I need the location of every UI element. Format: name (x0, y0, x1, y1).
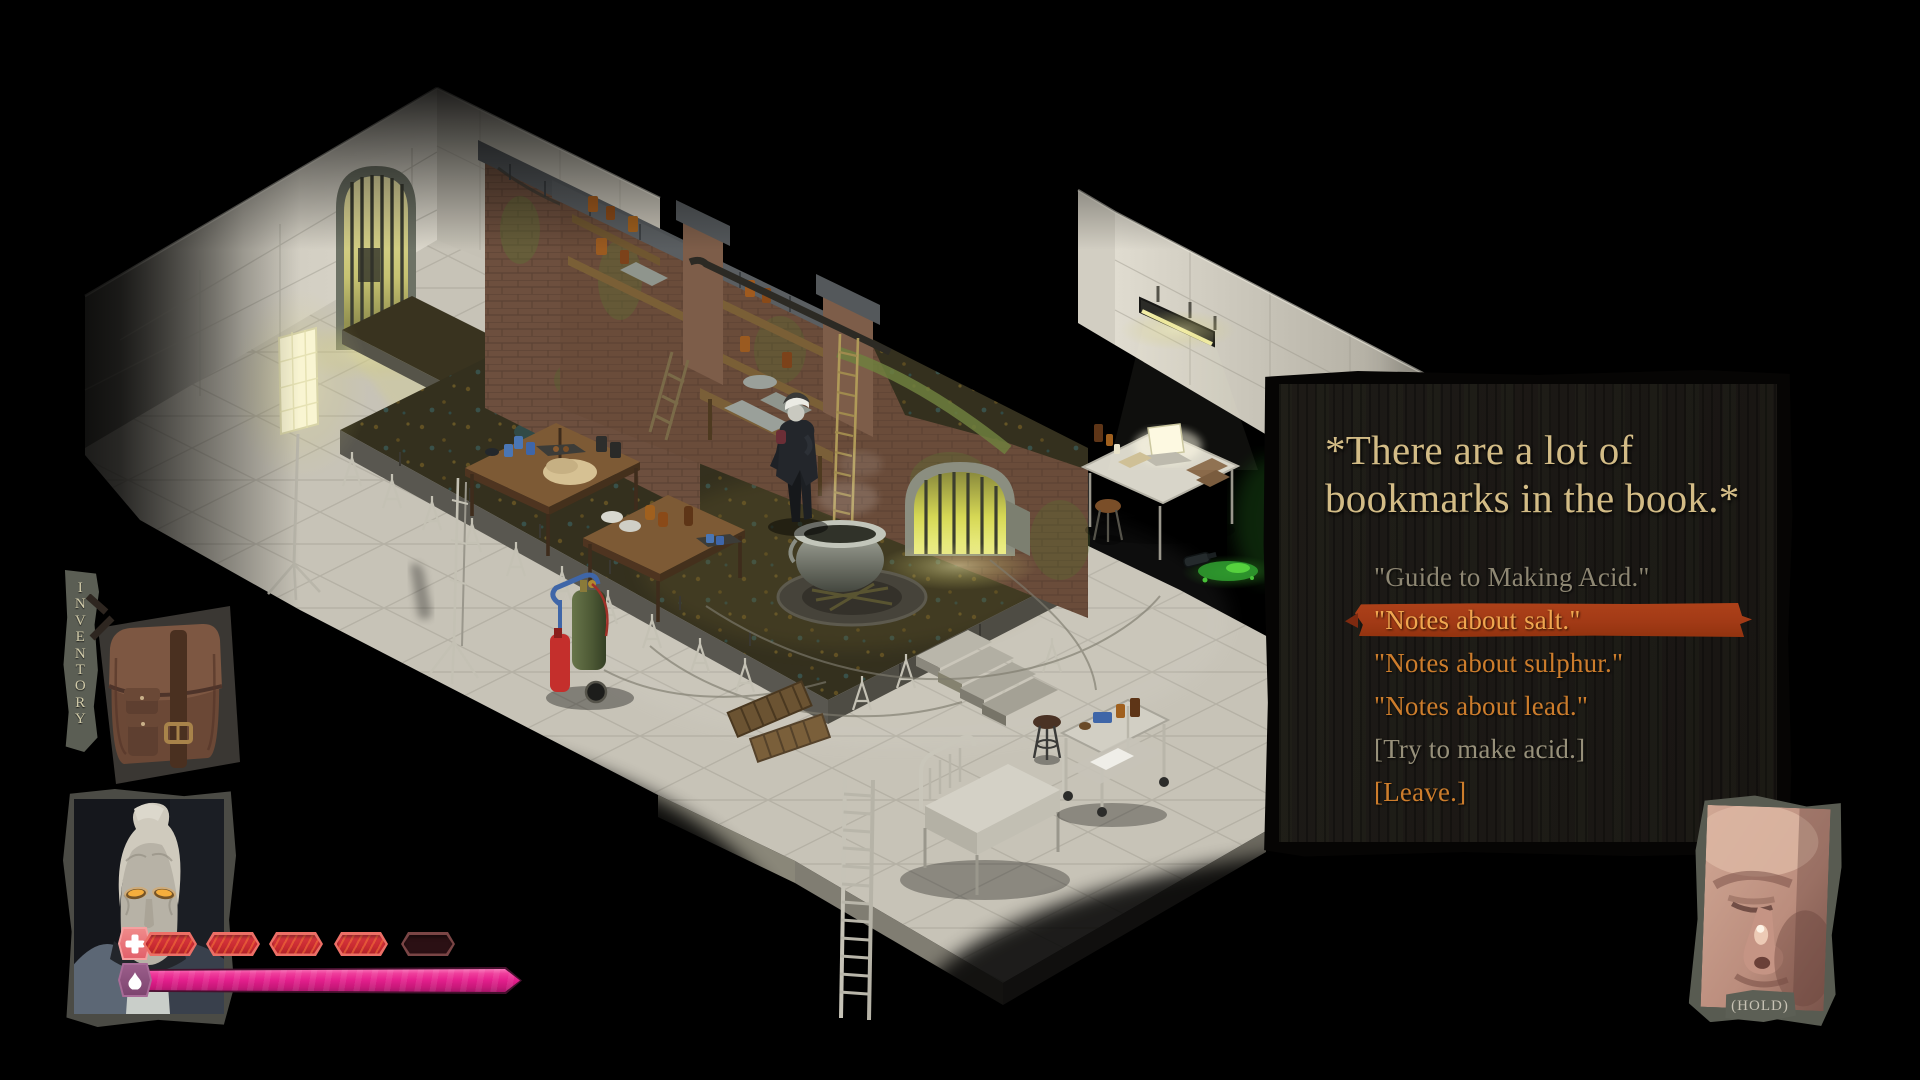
dialog-option[interactable]: "Guide to Making Acid." (1357, 556, 1753, 599)
dialog-option[interactable]: [Try to make acid.] (1357, 728, 1753, 771)
health-segment (269, 932, 323, 956)
health-segment (401, 932, 455, 956)
sleeping-face-art (1701, 805, 1831, 1011)
wake-up-button[interactable]: W A K E U P (1688, 766, 1852, 1028)
health-segment (143, 932, 197, 956)
narration-line-2: bookmarks in the book.* (1325, 474, 1765, 522)
wake-up-hold-hint: (HOLD) (1724, 990, 1796, 1022)
game-screen: *There are a lot of bookmarks in the boo… (0, 0, 1920, 1080)
stool-dark (1033, 715, 1061, 765)
blood-icon-badge (118, 963, 152, 997)
dialog-option[interactable]: "Notes about lead." (1357, 685, 1753, 728)
dialog-option[interactable]: "Notes about sulphur." (1357, 642, 1753, 685)
plus-cross-icon (125, 934, 144, 953)
stool-brown (1094, 499, 1122, 545)
health-segment (334, 932, 388, 956)
inventory-bag-button[interactable] (82, 594, 242, 790)
satchel-icon (82, 594, 242, 790)
dialog-option[interactable]: "Notes about salt." (1357, 599, 1753, 642)
health-segment (206, 932, 260, 956)
blood-bar (118, 961, 528, 999)
blood-bar-fill (144, 969, 520, 992)
narration-line-1: *There are a lot of (1325, 426, 1765, 474)
narration-text: *There are a lot of bookmarks in the boo… (1325, 426, 1765, 522)
droplet-icon (126, 971, 145, 990)
blood-bar-track (142, 967, 522, 994)
health-bar (118, 925, 478, 963)
